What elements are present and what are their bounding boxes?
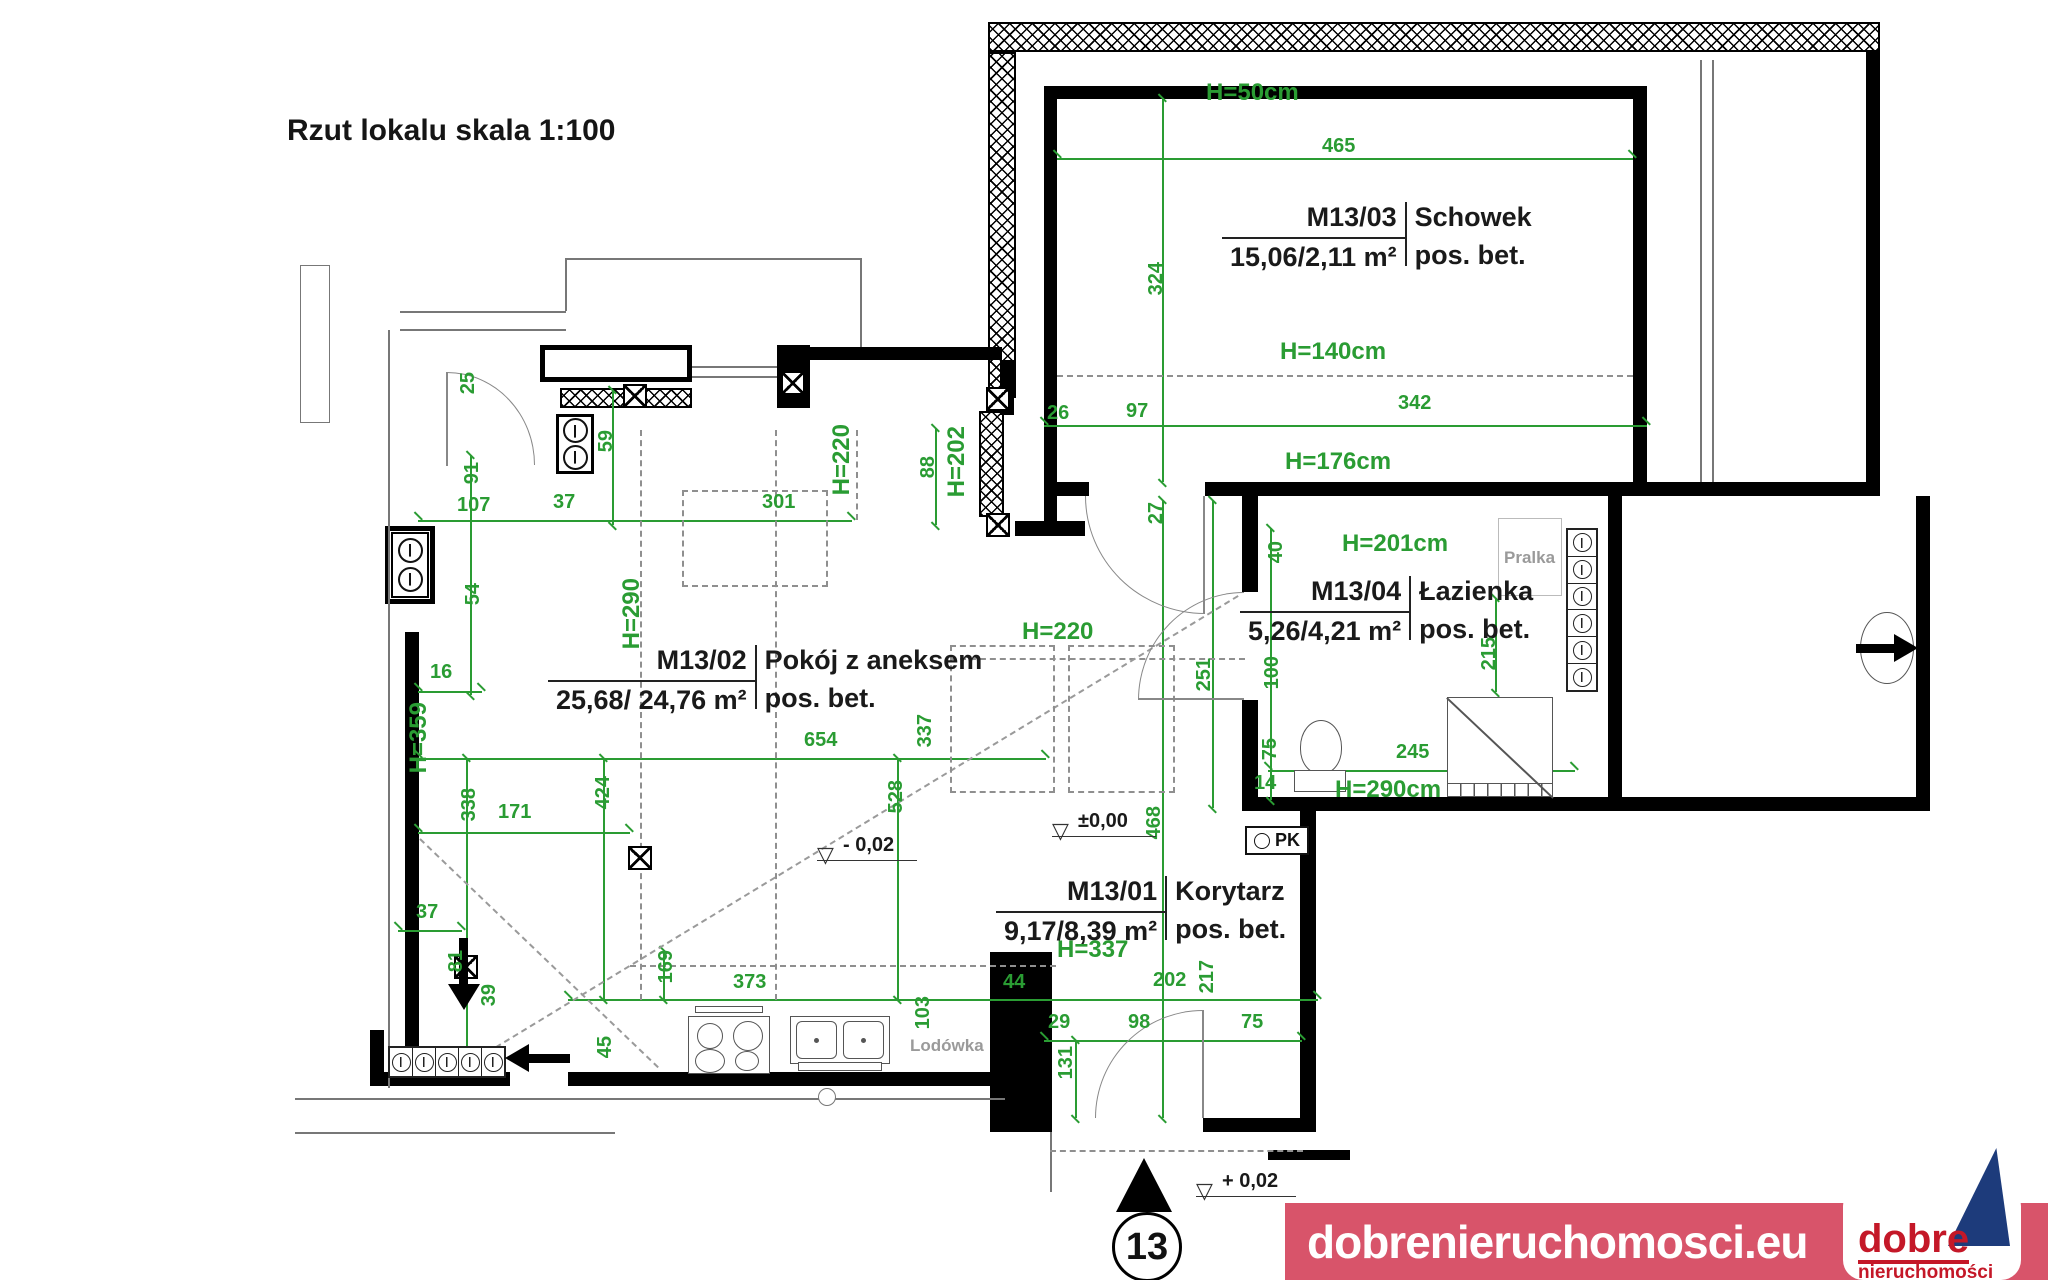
wall-segment [1300, 811, 1316, 1132]
dimension-label: 39 [479, 984, 499, 1006]
outline [400, 311, 566, 313]
dimension-label: 217 [1197, 960, 1217, 993]
dimension-label: 103 [913, 996, 933, 1029]
dimension-label: 27 [1146, 502, 1166, 524]
dimension-label: 37 [416, 902, 438, 922]
dimension-label: 88 [918, 456, 938, 478]
dim-line [398, 930, 462, 932]
outline [388, 330, 390, 1088]
sink-drainer [798, 1062, 882, 1071]
exit-arrow-head [505, 1044, 529, 1072]
wall-segment [1203, 1118, 1303, 1132]
height-label: H=176cm [1285, 450, 1391, 474]
dimension-label: 16 [430, 662, 452, 682]
outline [295, 1098, 1005, 1100]
furniture-table [682, 490, 828, 587]
room-name: Pokój z aneksem [757, 645, 991, 680]
room-label-schowek: M13/03 15,06/2,11 m² Schowek pos. bet. [1222, 202, 1540, 273]
wall-segment [1044, 86, 1057, 536]
washbasin-arrow [1856, 644, 1898, 653]
dimension-label: 40 [1266, 541, 1286, 563]
outline [1700, 60, 1702, 482]
dim-line [1044, 425, 1647, 427]
room-floor: pos. bet. [1167, 911, 1294, 945]
height-label: H=201cm [1342, 532, 1448, 556]
height-label: H=359 [407, 702, 431, 773]
dimension-label: 131 [1056, 1046, 1076, 1079]
wall-hatched-top-band [988, 22, 1880, 52]
unit-number-badge: 13 [1112, 1212, 1182, 1280]
dim-line [612, 390, 614, 525]
ceiling-line [630, 965, 1056, 967]
wall-segment [1633, 86, 1647, 496]
dimension-label: 424 [593, 776, 613, 809]
wall-segment [1242, 700, 1258, 811]
height-label: H=220 [1022, 620, 1093, 644]
dimension-label: 26 [1047, 403, 1069, 423]
room-floor: pos. bet. [1407, 237, 1534, 271]
sink-outline [790, 1016, 890, 1064]
dimension-label: 59 [596, 430, 616, 452]
room-id: M13/04 [1240, 576, 1409, 613]
dimension-label: 91 [462, 462, 482, 484]
dimension-label: 29 [1048, 1012, 1070, 1032]
dim-line [1057, 158, 1633, 160]
wall-segment [1916, 496, 1930, 811]
door-leaf [1202, 1010, 1204, 1118]
dimension-label: 301 [762, 492, 795, 512]
wall-segment [1015, 521, 1085, 536]
wall-hatched-corridor [979, 411, 1004, 517]
dim-line [568, 999, 1318, 1001]
dimension-label: 528 [886, 780, 906, 813]
dimension-label: 44 [1003, 972, 1025, 992]
washbasin-arrow-head [1894, 634, 1918, 662]
brand-name-line2: nieruchomości [1858, 1262, 1993, 1280]
wall-segment [1866, 52, 1880, 496]
door-leaf [446, 372, 448, 466]
dimension-label: 169 [656, 950, 676, 983]
room-id: M13/02 [548, 645, 755, 682]
door-arc-bathroom [1138, 592, 1244, 700]
outline [565, 258, 567, 311]
wall-shaft-block [540, 345, 692, 382]
socket-icon [391, 532, 429, 598]
ceiling-line [1050, 1150, 1303, 1152]
dimension-label: 465 [1322, 136, 1355, 156]
height-label: H=50cm [1206, 81, 1299, 105]
dimension-label: 75 [1241, 1012, 1263, 1032]
pk-label: PK [1275, 830, 1300, 851]
level-marker: + 0,02▽ [1222, 1170, 1278, 1193]
outline-circle [818, 1088, 836, 1106]
window-line [692, 366, 777, 368]
dimension-label: 215 [1479, 637, 1499, 670]
dimension-label: 202 [1153, 970, 1186, 990]
dimension-label: 37 [553, 492, 575, 512]
level-marker: ±0,00▽ [1078, 810, 1128, 833]
floor-plan-canvas: Rzut lokalu skala 1:100 [0, 0, 2048, 1280]
dim-line [418, 832, 630, 834]
socket-circle-icon [563, 445, 588, 470]
room-id: M13/01 [996, 876, 1165, 913]
height-label: H=140cm [1280, 340, 1386, 364]
dimension-label: 251 [1194, 658, 1214, 691]
radiator-strip [388, 1046, 506, 1078]
room-name: Schowek [1407, 202, 1540, 237]
room-label-pokoj: M13/02 25,68/ 24,76 m² Pokój z aneksem p… [548, 645, 990, 716]
dim-line [470, 455, 472, 695]
brand-name-line1: dobre [1858, 1218, 1969, 1264]
footer-website[interactable]: dobrenieruchomosci.eu [1285, 1215, 1807, 1269]
dimension-label: 324 [1146, 262, 1166, 295]
room-label-korytarz: M13/01 9,17/8,39 m² Korytarz pos. bet. [996, 876, 1294, 947]
pralka-label: Pralka [1504, 548, 1555, 568]
shaft-icon [986, 513, 1010, 537]
room-floor: pos. bet. [1411, 611, 1538, 645]
dimension-label: 373 [733, 972, 766, 992]
height-label: H=337 [1057, 938, 1128, 962]
dimension-label: 107 [457, 495, 490, 515]
ceiling-line [1057, 375, 1633, 377]
north-arrow-icon [1116, 1158, 1172, 1212]
height-label: H=290 [620, 578, 644, 649]
room-area: 25,68/ 24,76 m² [548, 682, 755, 716]
dimension-label: 171 [498, 802, 531, 822]
room-name: Łazienka [1411, 576, 1541, 611]
wall-segment [1608, 496, 1622, 797]
dimension-label: 468 [1144, 806, 1164, 839]
shaft-icon [986, 387, 1010, 411]
wall-segment [1205, 482, 1878, 496]
dimension-label: 654 [804, 730, 837, 750]
dimension-label: 245 [1396, 742, 1429, 762]
wall-segment [568, 1072, 1004, 1086]
room-area: 5,26/4,21 m² [1240, 613, 1409, 647]
balcony-arrow-head [448, 984, 480, 1010]
stove-icon [688, 1016, 770, 1074]
dim-line [418, 691, 482, 693]
room-name: Korytarz [1167, 876, 1293, 911]
wall-segment [405, 632, 419, 1072]
shaft-icon [781, 371, 805, 395]
dimension-label: 25 [458, 372, 478, 394]
room-id: M13/03 [1222, 202, 1405, 239]
stove-back [695, 1006, 763, 1013]
dimension-label: 81 [446, 950, 466, 972]
outline [1712, 60, 1714, 482]
pk-circle-icon [1254, 833, 1270, 849]
toilet-icon [1300, 720, 1342, 774]
dimension-label: 338 [459, 788, 479, 821]
height-label: H=202 [945, 426, 969, 497]
dimension-label: 45 [595, 1036, 615, 1058]
door-leaf [1203, 496, 1205, 614]
socket-circle-icon [398, 538, 423, 563]
outline [860, 258, 862, 347]
outline [400, 329, 566, 331]
ceiling-line [856, 430, 858, 520]
socket-circle-icon [398, 567, 423, 592]
shaft-icon [623, 384, 647, 408]
outline [565, 258, 860, 260]
dimension-label: 342 [1398, 393, 1431, 413]
shaft-icon [628, 846, 652, 870]
socket-circle-icon [563, 418, 588, 443]
plan-title: Rzut lokalu skala 1:100 [287, 114, 615, 148]
wall-segment [1044, 482, 1089, 496]
dimension-label: 337 [915, 714, 935, 747]
wall-segment [1044, 86, 1647, 99]
pk-marker: PK [1245, 826, 1309, 855]
outline-box [300, 265, 330, 423]
dimension-label: 98 [1128, 1012, 1150, 1032]
dimension-label: 75 [1260, 738, 1280, 760]
outline [1050, 1132, 1052, 1192]
door-leaf [1138, 698, 1244, 700]
socket-icon [556, 414, 594, 474]
lodowka-label: Lodówka [910, 1036, 984, 1056]
dimension-label: 14 [1254, 773, 1276, 793]
height-label: H=220 [830, 424, 854, 495]
dimension-label: 100 [1262, 656, 1282, 689]
window-line [692, 376, 777, 378]
shower-grid [1447, 783, 1553, 797]
dimension-label: 54 [463, 583, 483, 605]
height-label: H=290cm [1335, 778, 1441, 802]
wall-segment [810, 347, 1002, 360]
room-area: 15,06/2,11 m² [1222, 239, 1405, 273]
radiator-strip [1566, 528, 1598, 692]
room-floor: pos. bet. [757, 680, 884, 714]
dimension-label: 97 [1126, 401, 1148, 421]
outline [295, 1132, 615, 1134]
level-marker: - 0,02▽ [843, 834, 894, 857]
exit-arrow [528, 1054, 570, 1063]
